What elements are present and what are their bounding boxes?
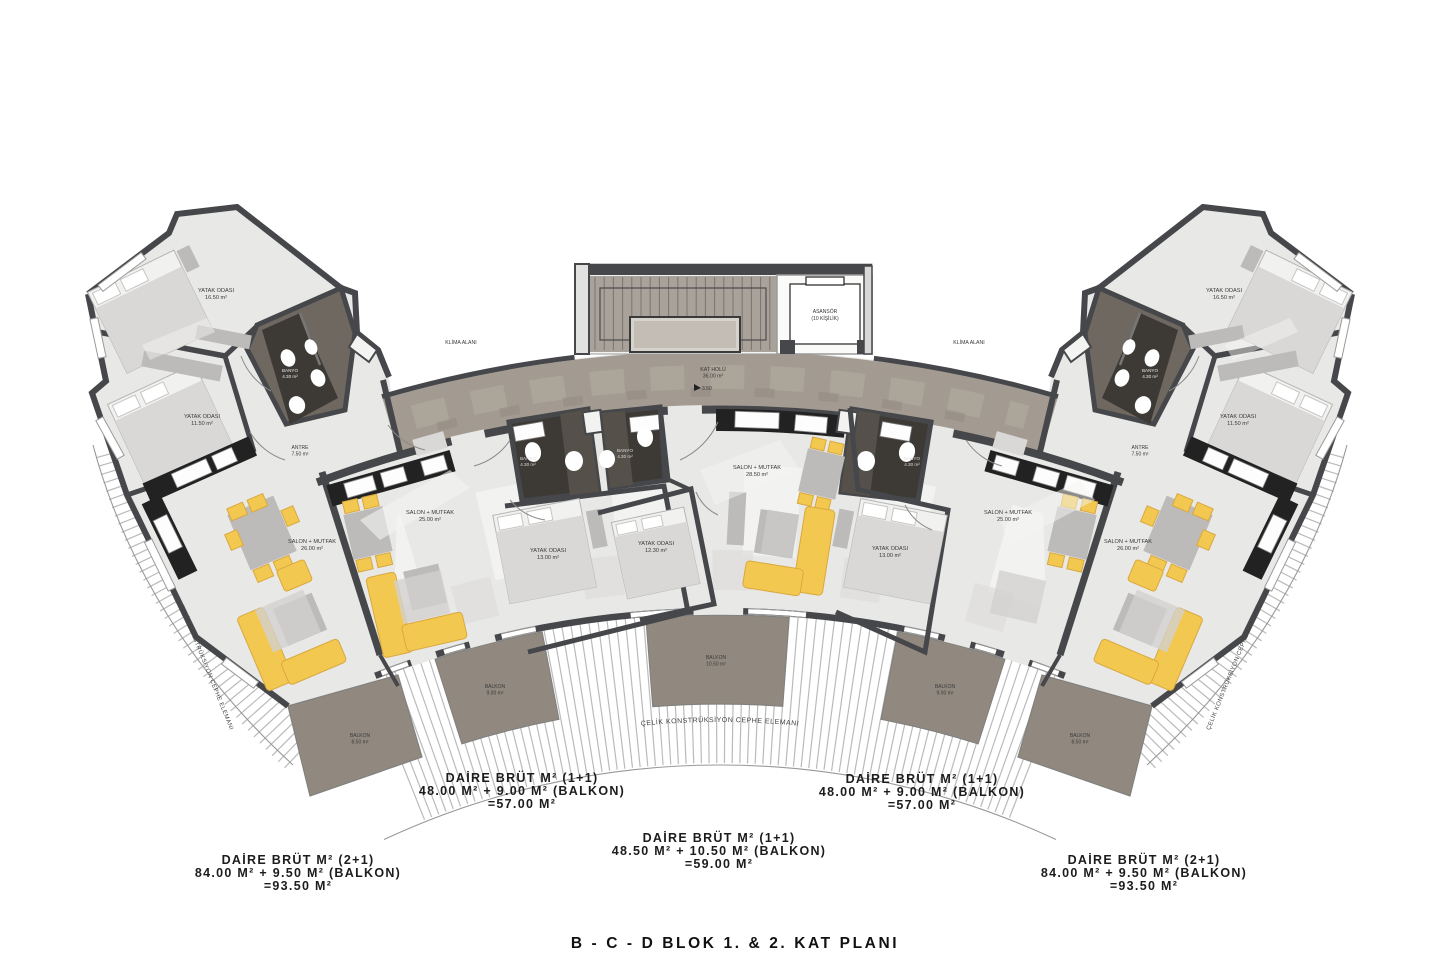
svg-text:B - C - D BLOK 1. & 2. KAT PLA: B - C - D BLOK 1. & 2. KAT PLANI xyxy=(571,935,899,952)
svg-text:KAT HOLÜ36.00 m²: KAT HOLÜ36.00 m² xyxy=(700,366,726,380)
svg-text:=59.00 M²: =59.00 M² xyxy=(685,857,753,871)
svg-text:BALKON9.00 m²: BALKON9.00 m² xyxy=(935,684,956,697)
svg-text:DAİRE BRÜT M² (2+1): DAİRE BRÜT M² (2+1) xyxy=(1068,852,1221,867)
svg-text:48.00 M² + 9.00 M² (BALKON): 48.00 M² + 9.00 M² (BALKON) xyxy=(819,785,1025,799)
svg-text:=93.50 M²: =93.50 M² xyxy=(1110,879,1178,893)
svg-text:BANYO4.30 m²: BANYO4.30 m² xyxy=(1142,368,1159,379)
svg-text:(10 KİŞİLİK): (10 KİŞİLİK) xyxy=(811,315,839,322)
svg-text:KLİMA ALANI: KLİMA ALANI xyxy=(445,339,476,346)
svg-text:DAİRE BRÜT M² (1+1): DAİRE BRÜT M² (1+1) xyxy=(643,830,796,845)
svg-text:48.50 M² + 10.50 M² (BALKON): 48.50 M² + 10.50 M² (BALKON) xyxy=(612,844,827,858)
svg-text:=57.00 M²: =57.00 M² xyxy=(488,797,556,811)
svg-text:84.00 M² + 9.50 M² (BALKON): 84.00 M² + 9.50 M² (BALKON) xyxy=(1041,866,1247,880)
svg-text:KLİMA ALANI: KLİMA ALANI xyxy=(953,339,984,346)
svg-text:BANYO4.30 m²: BANYO4.30 m² xyxy=(904,456,921,467)
svg-text:DAİRE BRÜT M² (1+1): DAİRE BRÜT M² (1+1) xyxy=(446,770,599,785)
svg-text:=57.00 M²: =57.00 M² xyxy=(888,798,956,812)
svg-text:=93.50 M²: =93.50 M² xyxy=(264,879,332,893)
svg-text:DAİRE BRÜT M² (1+1): DAİRE BRÜT M² (1+1) xyxy=(846,771,999,786)
svg-text:BALKON8.50 m²: BALKON8.50 m² xyxy=(1070,733,1091,746)
svg-text:ASANSÖR: ASANSÖR xyxy=(813,308,838,315)
svg-text:84.00 M² + 9.50 M² (BALKON): 84.00 M² + 9.50 M² (BALKON) xyxy=(195,866,401,880)
svg-text:ANTRE7.50 m²: ANTRE7.50 m² xyxy=(1132,445,1150,458)
svg-text:BANYO4.30 m²: BANYO4.30 m² xyxy=(617,448,634,459)
svg-text:48.00 M² + 9.00 M² (BALKON): 48.00 M² + 9.00 M² (BALKON) xyxy=(419,784,625,798)
svg-text:ANTRE7.50 m²: ANTRE7.50 m² xyxy=(292,445,310,458)
svg-text:3.50: 3.50 xyxy=(702,386,712,392)
svg-text:BALKON9.00 m²: BALKON9.00 m² xyxy=(485,684,506,697)
svg-text:BALKON10.50 m²: BALKON10.50 m² xyxy=(706,655,727,668)
svg-text:BALKON8.50 m²: BALKON8.50 m² xyxy=(350,733,371,746)
svg-text:DAİRE BRÜT M² (2+1): DAİRE BRÜT M² (2+1) xyxy=(222,852,375,867)
svg-text:BANYO4.30 m²: BANYO4.30 m² xyxy=(520,456,537,467)
svg-text:BANYO4.30 m²: BANYO4.30 m² xyxy=(282,368,299,379)
